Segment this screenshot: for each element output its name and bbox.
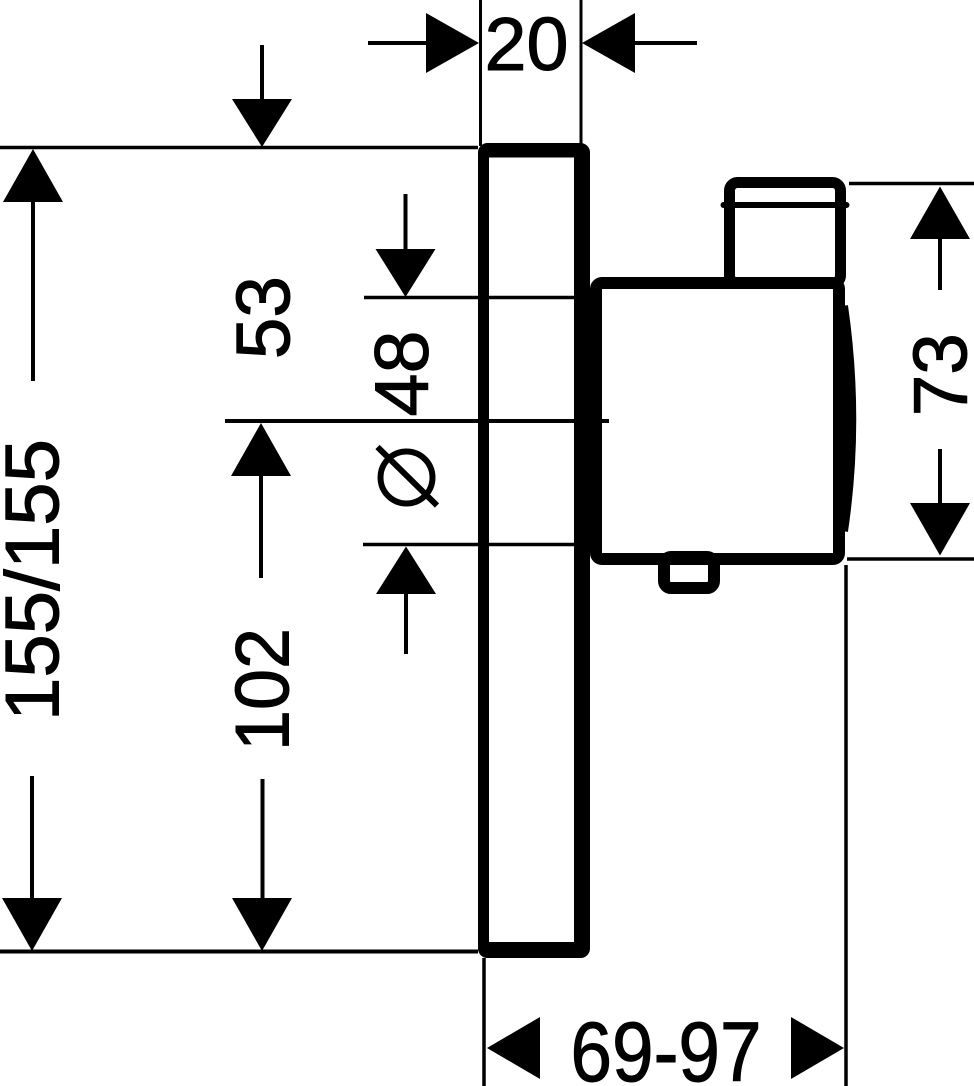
svg-text:53: 53 [221, 276, 306, 359]
svg-text:155/155: 155/155 [0, 439, 76, 721]
svg-text:48: 48 [360, 331, 445, 417]
svg-text:69-97: 69-97 [571, 1005, 762, 1086]
svg-text:20: 20 [485, 2, 569, 86]
svg-text:102: 102 [221, 628, 306, 751]
svg-text:73: 73 [899, 333, 974, 416]
